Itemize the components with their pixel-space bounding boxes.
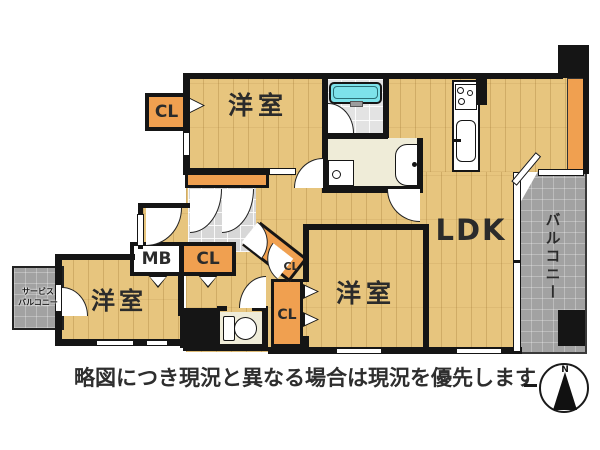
bedroom-center-label: 洋室 bbox=[310, 276, 422, 308]
pillar-toilet bbox=[180, 308, 220, 348]
washing-machine-drain bbox=[332, 170, 341, 179]
wall-room3-left-lower bbox=[303, 336, 309, 350]
window-ldk-balcony-mullion bbox=[513, 260, 521, 263]
wall-room3-top bbox=[303, 224, 429, 230]
closet-center-label: CL bbox=[272, 306, 302, 324]
toilet-bowl bbox=[234, 317, 257, 340]
wall-room3-left-upper bbox=[303, 224, 309, 282]
wall-bottom-left bbox=[183, 344, 268, 351]
closet-top-left-label: CL bbox=[147, 95, 186, 129]
window-room3-bottom bbox=[336, 348, 382, 354]
wall-bath-wash-divider bbox=[322, 133, 388, 139]
window-ldk-bottom bbox=[456, 348, 502, 354]
wall-bath-right bbox=[383, 73, 389, 138]
bathtub-inner-line bbox=[333, 86, 378, 99]
doorway-room1 bbox=[269, 168, 296, 175]
bedroom-left-label: 洋室 bbox=[64, 282, 174, 314]
balcony-label: バルコニー bbox=[540, 198, 566, 316]
wall-toilet-right bbox=[262, 306, 268, 348]
service-balcony-label: サービス バルコニー bbox=[12, 266, 64, 330]
stove-burner-2 bbox=[467, 90, 473, 96]
compass-tick bbox=[524, 384, 537, 387]
wall-top bbox=[183, 73, 563, 79]
window-room2-bottom-1 bbox=[96, 340, 134, 346]
closet-hall-door-mark bbox=[198, 275, 218, 288]
entry-door-leaf bbox=[137, 214, 144, 246]
window-room2-bottom-2 bbox=[146, 340, 168, 346]
wall-room2-top bbox=[55, 254, 135, 260]
bedroom-top-label: 洋室 bbox=[193, 88, 323, 120]
window-balcony-top bbox=[538, 169, 584, 176]
wall-right bbox=[583, 45, 589, 174]
stove-burner-3 bbox=[458, 98, 465, 105]
closet-diagonal-label: CL bbox=[277, 259, 305, 273]
wall-wash-right bbox=[417, 138, 423, 193]
bathtub-step bbox=[350, 101, 363, 107]
balcony-rail-bottom bbox=[520, 352, 587, 354]
wall-toilet-top-a bbox=[217, 306, 227, 311]
kitchen-faucet bbox=[453, 139, 461, 142]
wall-room1-bottom bbox=[183, 168, 271, 175]
kitchen-side-counter bbox=[567, 78, 584, 172]
window-room1-left bbox=[183, 132, 190, 156]
disclaimer-text: 略図につき現況と異なる場合は現況を優先します bbox=[75, 362, 535, 392]
compass: N bbox=[538, 360, 592, 416]
balcony-rail-right bbox=[585, 170, 587, 354]
stove-burner-1 bbox=[457, 87, 464, 94]
wall-kitchen-stub bbox=[476, 73, 487, 105]
meter-box-label: MB bbox=[132, 244, 181, 274]
floor-plan: 洋室 洋室 洋室 LDK バルコニー サービス バルコニー CL MB CL C… bbox=[0, 0, 600, 450]
ldk-label: LDK bbox=[425, 212, 517, 248]
closet-hall-label: CL bbox=[182, 244, 234, 274]
closet-center-door-mark-2 bbox=[303, 312, 319, 327]
